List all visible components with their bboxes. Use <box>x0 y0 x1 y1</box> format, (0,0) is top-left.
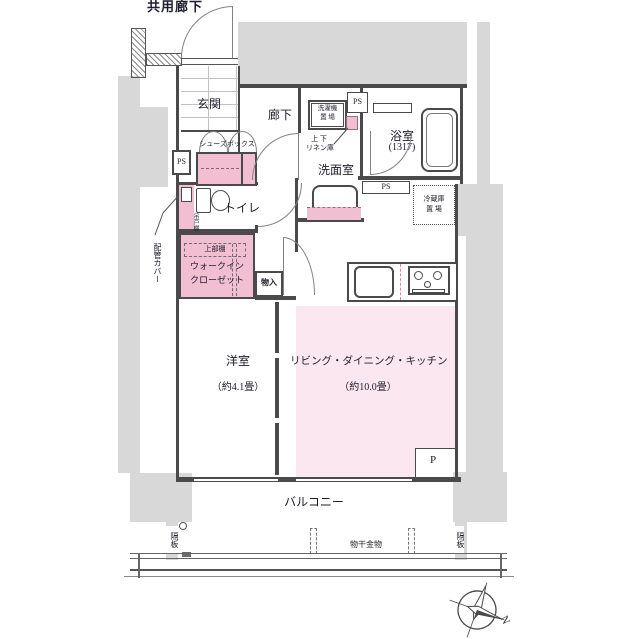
wic-label-1: ウォークイン <box>181 262 253 271</box>
compass-icon: N <box>440 580 520 639</box>
balcony-railing-line-4 <box>124 576 514 577</box>
ps-bath-label: PS <box>362 183 410 191</box>
stove-burner-center <box>424 281 431 288</box>
ps-top-label: PS <box>347 98 368 106</box>
laundry-hook-left <box>310 528 317 554</box>
balcony-railing-line-3 <box>130 569 507 571</box>
balcony-railing-line-1 <box>130 553 507 554</box>
bath-counter <box>373 103 412 113</box>
washer-label-2: 置 場 <box>309 115 346 122</box>
wic-label-2: クローゼット <box>181 276 253 285</box>
hatched-wall-horizontal <box>146 53 182 66</box>
common-corridor-label: 共用廊下 <box>143 0 207 14</box>
wall-right-upper-strip <box>477 22 490 184</box>
sliding-door-segment-1 <box>275 302 279 353</box>
bathtub-inner <box>426 113 453 167</box>
stove-burner-right <box>433 271 442 280</box>
sliding-door-segment-3 <box>275 423 279 475</box>
washer-label-1: 洗濯機 <box>309 106 346 113</box>
hatched-wall-vertical <box>131 28 146 78</box>
bedroom-window <box>194 479 278 481</box>
compass-north-label: N <box>498 614 512 626</box>
wall-right-lower <box>466 236 503 478</box>
stove-burner-left <box>414 271 423 280</box>
partition-left-label: 隔板 <box>166 526 178 554</box>
linen-label-1: 上 下 <box>304 136 334 143</box>
wall-top-right <box>238 22 467 84</box>
hallway-label: 廊下 <box>264 109 296 122</box>
ldk-label: リビング・ダイニング・キッチン <box>290 356 446 367</box>
balcony-railing-line-2 <box>130 558 507 559</box>
washroom-label: 洗面室 <box>314 164 358 177</box>
linen-cabinet <box>346 116 358 130</box>
ldk-window <box>296 479 412 481</box>
wall-right-mid <box>458 184 503 236</box>
sliding-door-segment-2 <box>275 358 279 418</box>
wall-left-block <box>140 107 168 187</box>
vanity-cabinet <box>307 207 361 220</box>
stove <box>408 266 450 295</box>
entrance-label: 玄関 <box>189 98 229 111</box>
entrance-threshold <box>181 58 238 65</box>
western-room-size-label: （約4.1畳） <box>196 383 280 394</box>
bath-door-arc <box>370 131 412 175</box>
laundry-hardware-label: 物干金物 <box>342 541 390 549</box>
western-room-label: 洋室 <box>200 355 276 368</box>
wall-bottom-right-block <box>453 472 507 522</box>
fridge-label-2: 置 場 <box>414 206 454 213</box>
storage-label: 物入 <box>256 279 282 287</box>
railing-post-left <box>138 553 140 578</box>
ldk-door-arc <box>283 237 315 295</box>
stove-grill <box>412 289 445 293</box>
floor-plan: 玄関 シューズボックス PS 廊下 洗濯機 置 場 PS 上 下 リネン庫 洗面… <box>0 0 640 639</box>
kitchen-divider-dashed <box>400 264 401 300</box>
unit-right-wall-upper <box>460 84 463 184</box>
ldk-size-label: （約10.0畳） <box>290 383 446 394</box>
shoebox-label: シューズボックス <box>193 141 261 148</box>
balcony-drain <box>179 522 187 530</box>
fridge-label-1: 冷蔵庫 <box>414 196 454 203</box>
wall-left-strip <box>118 76 140 473</box>
laundry-hook-right <box>408 528 415 554</box>
hall-washroom-wall-upper <box>298 88 301 133</box>
balcony-label: バルコニー <box>282 496 346 509</box>
toilet-tank <box>196 188 211 213</box>
shoebox-cabinet <box>196 152 257 186</box>
bath-bottom-wall <box>358 176 460 180</box>
partition-right-label: 隔板 <box>452 526 464 554</box>
pipe-cover-label: 配管カバー <box>148 237 161 289</box>
shoebox-divider <box>241 152 243 186</box>
railing-post-right <box>500 553 502 578</box>
kitchen-sink <box>354 266 394 298</box>
linen-label-2: リネン庫 <box>300 145 340 152</box>
unit-top-wall <box>238 84 467 88</box>
ldk-floor-upper <box>296 306 455 448</box>
ldk-floor-lower <box>296 448 415 477</box>
hanging-cupboard-label: 吊戸棚 <box>188 211 198 233</box>
toilet-label: トイレ <box>224 202 260 215</box>
unit-right-wall-lower <box>455 184 458 478</box>
toilet-duct-box <box>181 187 192 202</box>
pillar-label: P <box>424 455 442 467</box>
shoebox-dashed-line <box>201 168 239 169</box>
ps-left-label: PS <box>172 158 191 166</box>
